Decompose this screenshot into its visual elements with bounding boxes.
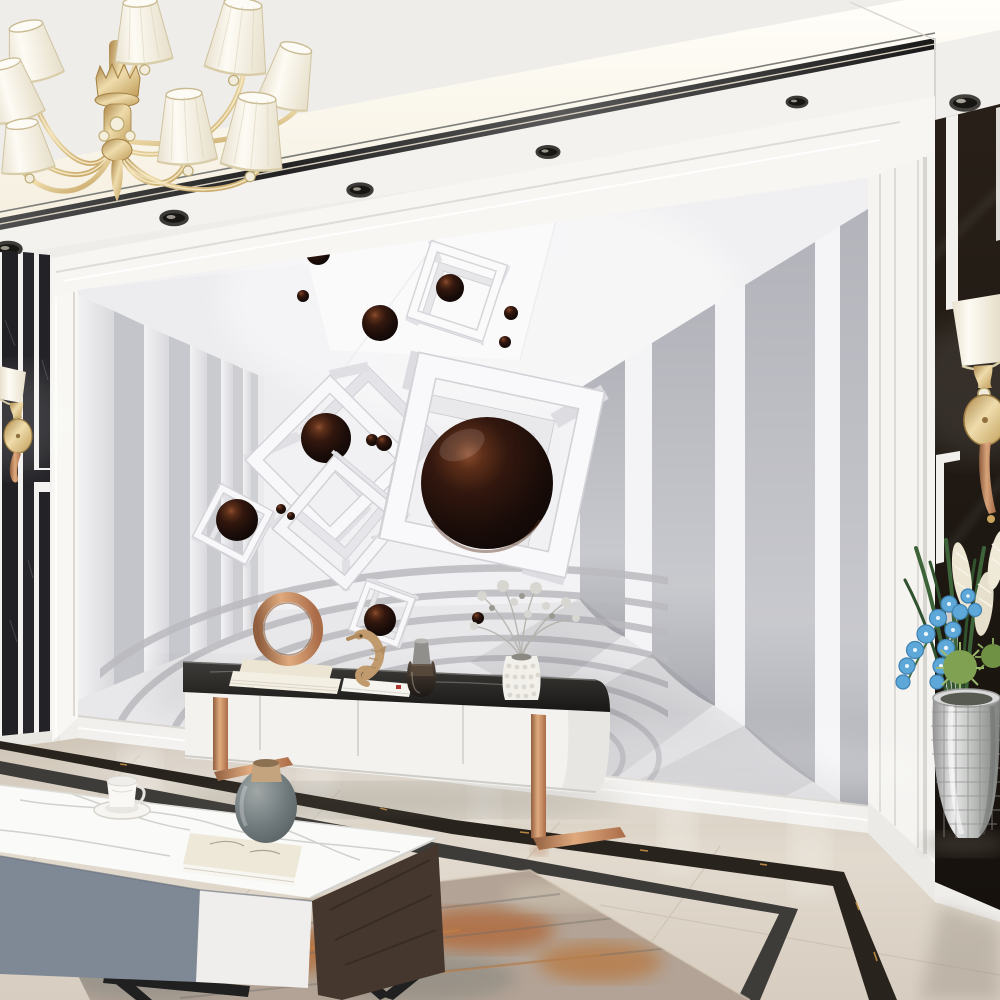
living-room-photo bbox=[0, 0, 1000, 1000]
